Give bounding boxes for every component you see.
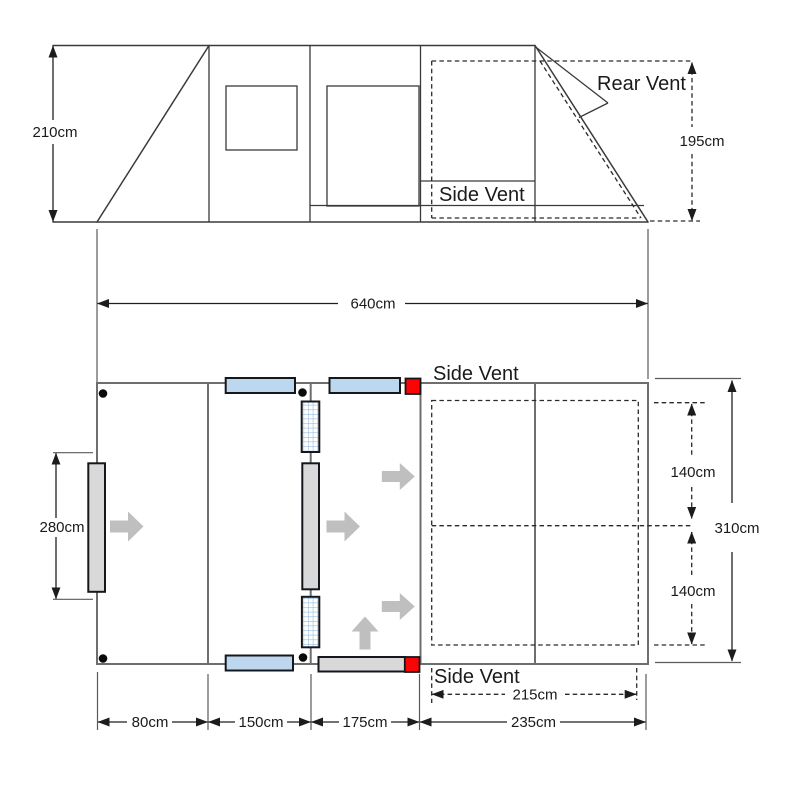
flap-edge-2 <box>579 103 608 118</box>
side-vent-label-plan-bottom: Side Vent <box>434 666 520 688</box>
dim-280cm: 280cm <box>39 453 93 600</box>
corner-dot <box>298 388 307 397</box>
tent-dimensions-diagram: Rear Vent Side Vent 210cm 195cm 640cm <box>0 0 800 800</box>
dim-text-235: 235cm <box>511 714 556 731</box>
flow-arrow-right-upper <box>382 463 415 490</box>
corner-dot <box>99 389 108 398</box>
dim-text-640: 640cm <box>350 296 395 313</box>
dim-bottom-sections: 80cm 150cm 175cm 235cm <box>98 672 647 731</box>
bedroom-inner-dashed <box>432 401 692 646</box>
rear-slope <box>535 46 648 223</box>
diagram-canvas: Rear Vent Side Vent 210cm 195cm 640cm <box>0 0 800 800</box>
floor-plan-view: Side Vent Side Vent 280cm 310cm 140cm <box>39 363 759 731</box>
dim-text-210: 210cm <box>32 124 77 141</box>
dim-140cm-bottom: 140cm <box>654 532 716 645</box>
corner-dot <box>99 654 108 663</box>
dim-text-140-top: 140cm <box>670 464 715 481</box>
dim-text-215: 215cm <box>512 687 557 704</box>
outer-wall <box>97 383 648 664</box>
rear-vent-label: Rear Vent <box>597 73 686 95</box>
side-door <box>327 86 419 206</box>
mesh-panel-top <box>302 402 320 453</box>
dim-text-140-bottom: 140cm <box>670 583 715 600</box>
dim-310cm: 310cm <box>655 379 760 663</box>
side-vent-label-plan-top: Side Vent <box>433 363 519 385</box>
dim-210cm: 210cm <box>32 46 77 222</box>
flow-arrow-right-porch <box>110 512 144 542</box>
front-slope <box>97 46 209 223</box>
dim-text-150: 150cm <box>238 714 283 731</box>
mesh-panel-bottom <box>302 597 319 648</box>
side-vent-label-elevation: Side Vent <box>439 184 525 206</box>
flow-arrow-right-lower <box>382 593 415 620</box>
dim-640cm: 640cm <box>97 229 648 383</box>
dim-175cm: 175cm <box>312 714 420 731</box>
window-top-1 <box>226 378 295 393</box>
flow-arrow-right-center <box>327 512 361 542</box>
inner-door <box>302 463 319 589</box>
side-elevation-view: Rear Vent Side Vent 210cm 195cm <box>32 46 724 223</box>
dim-235cm: 235cm <box>420 714 646 731</box>
dim-150cm: 150cm <box>209 714 311 731</box>
dim-text-80: 80cm <box>132 714 169 731</box>
front-door <box>88 463 105 592</box>
side-window <box>226 86 297 150</box>
window-bottom <box>226 656 293 671</box>
dim-text-195: 195cm <box>679 133 724 150</box>
flow-arrow-up <box>352 617 379 650</box>
corner-dot <box>299 653 308 662</box>
dim-text-280: 280cm <box>39 519 84 536</box>
dim-80cm: 80cm <box>98 714 208 731</box>
side-vent-marker-top <box>406 379 421 395</box>
window-top-2 <box>330 378 401 393</box>
dim-text-175: 175cm <box>342 714 387 731</box>
side-vent-marker-bottom <box>405 657 420 672</box>
side-door-plan <box>319 657 406 672</box>
dim-text-310: 310cm <box>714 520 759 537</box>
dim-140cm-top: 140cm <box>654 403 716 519</box>
